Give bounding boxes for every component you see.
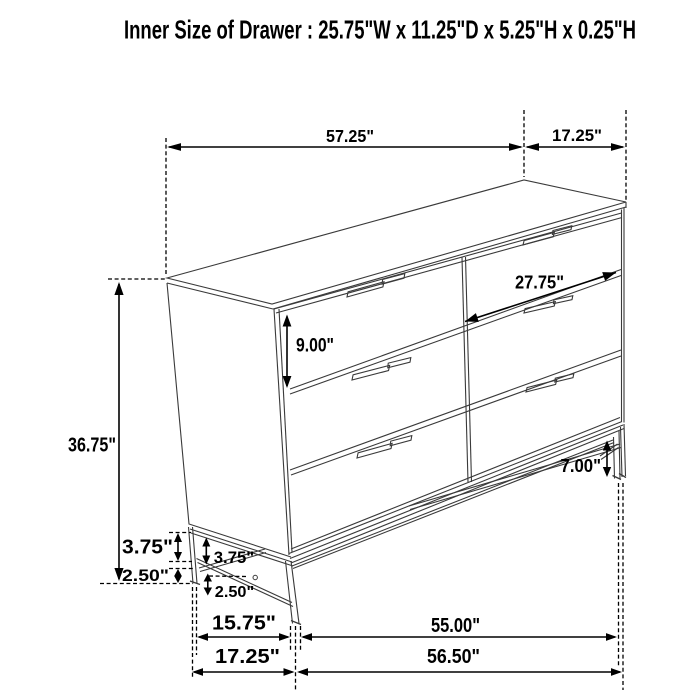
svg-text:17.25": 17.25" (552, 126, 602, 145)
svg-text:3.75": 3.75" (122, 537, 173, 559)
svg-text:2.50": 2.50" (122, 567, 169, 585)
svg-text:15.75": 15.75" (212, 612, 276, 635)
svg-text:2.50": 2.50" (215, 584, 255, 601)
svg-text:17.25": 17.25" (215, 645, 280, 668)
svg-text:27.75": 27.75" (515, 273, 564, 293)
svg-text:7.00": 7.00" (561, 456, 602, 476)
svg-text:Inner Size of Drawer : 25.75"W: Inner Size of Drawer : 25.75"W x 11.25"D… (124, 15, 636, 45)
svg-text:36.75": 36.75" (68, 435, 116, 457)
svg-text:9.00": 9.00" (296, 335, 334, 357)
svg-text:3.75": 3.75" (214, 548, 255, 567)
svg-text:56.50": 56.50" (427, 645, 480, 668)
svg-text:55.00": 55.00" (431, 615, 480, 637)
svg-text:57.25": 57.25" (326, 126, 374, 146)
